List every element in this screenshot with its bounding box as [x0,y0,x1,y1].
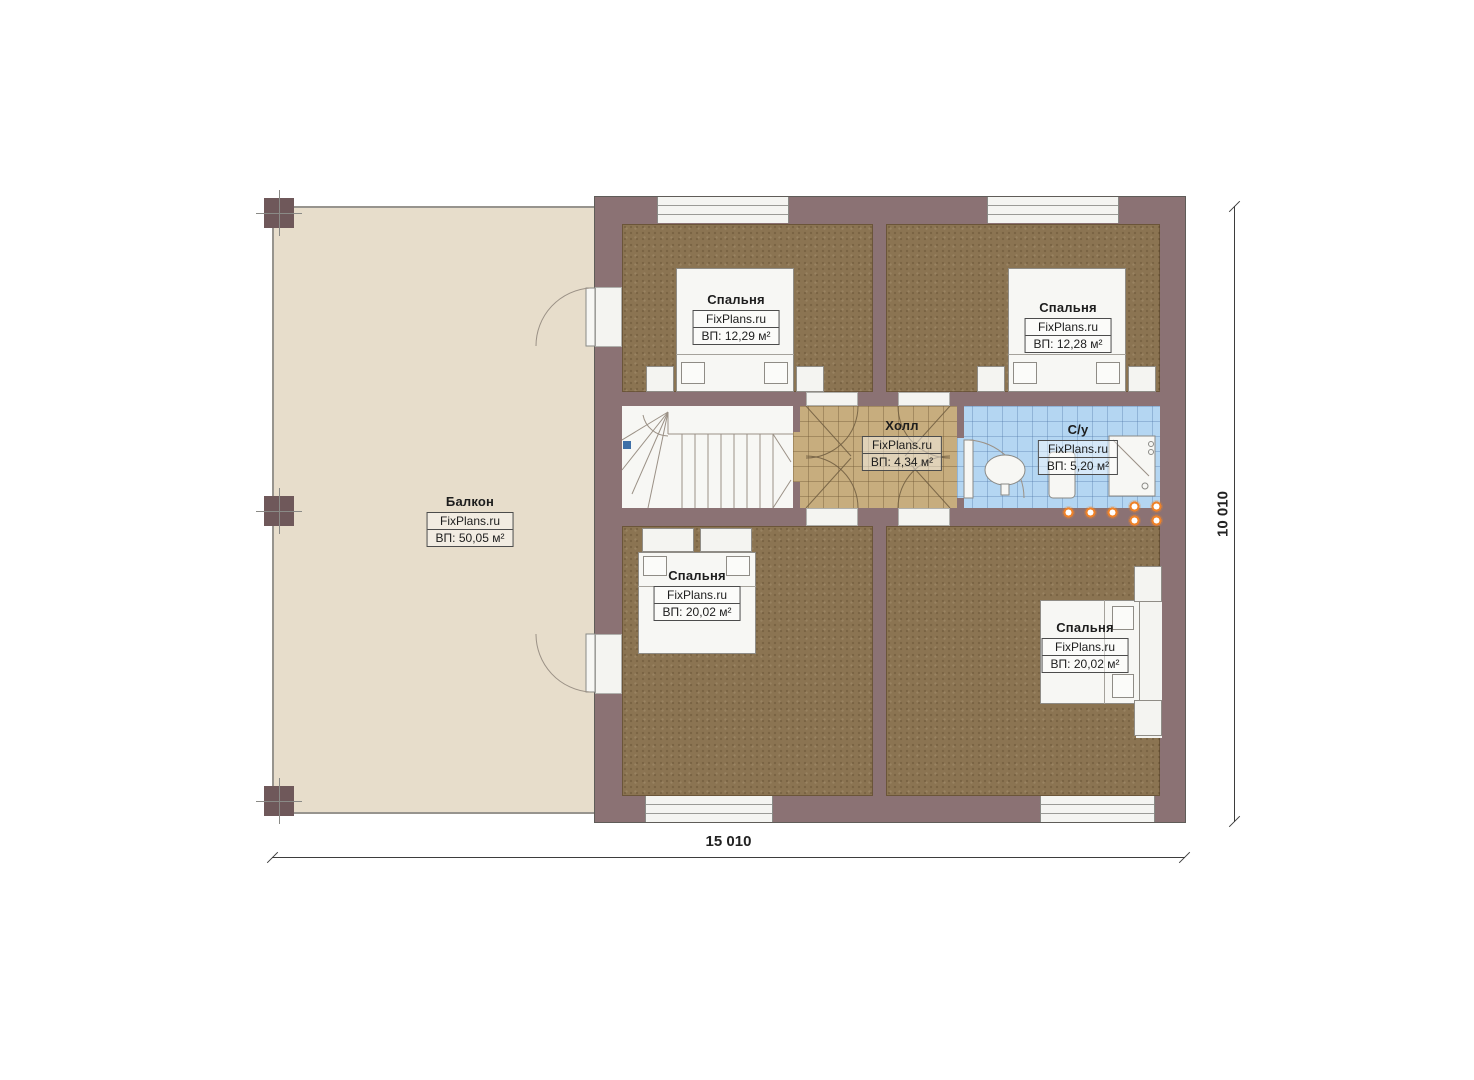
nightstand [1128,366,1156,392]
pillow [681,362,705,384]
dimension-line-width: 15 010 [272,857,1185,858]
room-label-bedroom-bottom-left: Спальня FixPlans.ru ВП: 20,02 м² [654,568,741,621]
dimension-width-label: 15 010 [706,833,752,850]
room-area: ВП: 20,02 м² [655,603,740,620]
window-icon [987,197,1119,223]
dimension-tick [1179,852,1190,863]
balcony-door-opening [595,634,622,694]
room-label-bathroom: С/у FixPlans.ru ВП: 5,20 м² [1038,422,1118,475]
spotlight-icon [1128,500,1141,513]
room-name: Спальня [1042,620,1129,635]
room-label-bedroom-bottom-right: Спальня FixPlans.ru ВП: 20,02 м² [1042,620,1129,673]
watermark: FixPlans.ru [863,437,941,453]
nightstand [700,528,752,552]
pillow [1013,362,1037,384]
balcony-door-swing [528,630,598,696]
watermark: FixPlans.ru [694,311,779,327]
pillar-icon [264,198,294,228]
spotlight-icon [1106,506,1119,519]
room-name: Спальня [1025,300,1112,315]
window-icon [645,796,773,822]
room-label-hall: Холл FixPlans.ru ВП: 4,34 м² [862,418,942,471]
spotlight-icon [1084,506,1097,519]
door-opening [898,392,950,406]
spotlight-icon [1062,506,1075,519]
room-area: ВП: 20,02 м² [1043,655,1128,672]
spotlight-icon [1150,514,1163,527]
nightstand [1134,566,1162,602]
staircase [622,406,793,508]
pillow [1112,674,1134,698]
dimension-height-label: 10 010 [1215,491,1232,537]
pillar-icon [264,496,294,526]
watermark: FixPlans.ru [655,587,740,603]
room-name: Спальня [654,568,741,583]
watermark: FixPlans.ru [428,513,513,529]
dimension-tick [1229,201,1240,212]
nightstand [646,366,674,392]
watermark: FixPlans.ru [1043,639,1128,655]
room-area: ВП: 12,29 м² [694,327,779,344]
pillow [1096,362,1120,384]
bathroom-door-leaf [964,440,973,498]
dimension-tick [267,852,278,863]
room-area: ВП: 4,34 м² [863,453,941,470]
balcony-door-swing [528,284,598,350]
bed-blanket-line [1008,354,1126,355]
nightstand [796,366,824,392]
nightstand [977,366,1005,392]
nightstand [1134,700,1162,736]
door-opening [898,508,950,526]
balcony-door-opening [595,287,622,347]
room-name: Спальня [693,292,780,307]
pillar-icon [264,786,294,816]
room-label-balcony: Балкон FixPlans.ru ВП: 50,05 м² [427,494,514,547]
dimension-tick [1229,816,1240,827]
spotlight-icon [1150,500,1163,513]
floor-plan-canvas: Балкон FixPlans.ru ВП: 50,05 м² Спальня … [0,0,1474,1080]
room-area: ВП: 5,20 м² [1039,457,1117,474]
room-label-bedroom-top-left: Спальня FixPlans.ru ВП: 12,29 м² [693,292,780,345]
toilet-icon [985,455,1025,485]
room-area: ВП: 50,05 м² [428,529,513,546]
spotlight-icon [1128,514,1141,527]
window-icon [1040,796,1155,822]
nightstand [642,528,694,552]
pillow [764,362,788,384]
window-icon [657,197,789,223]
room-name: Холл [862,418,942,433]
watermark: FixPlans.ru [1026,319,1111,335]
door-opening [806,508,858,526]
bed-blanket-line [676,354,794,355]
room-name: Балкон [427,494,514,509]
door-opening [806,392,858,406]
watermark: FixPlans.ru [1039,441,1117,457]
room-name: С/у [1038,422,1118,437]
dimension-line-height: 10 010 [1234,206,1235,822]
room-label-bedroom-top-right: Спальня FixPlans.ru ВП: 12,28 м² [1025,300,1112,353]
room-area: ВП: 12,28 м² [1026,335,1111,352]
